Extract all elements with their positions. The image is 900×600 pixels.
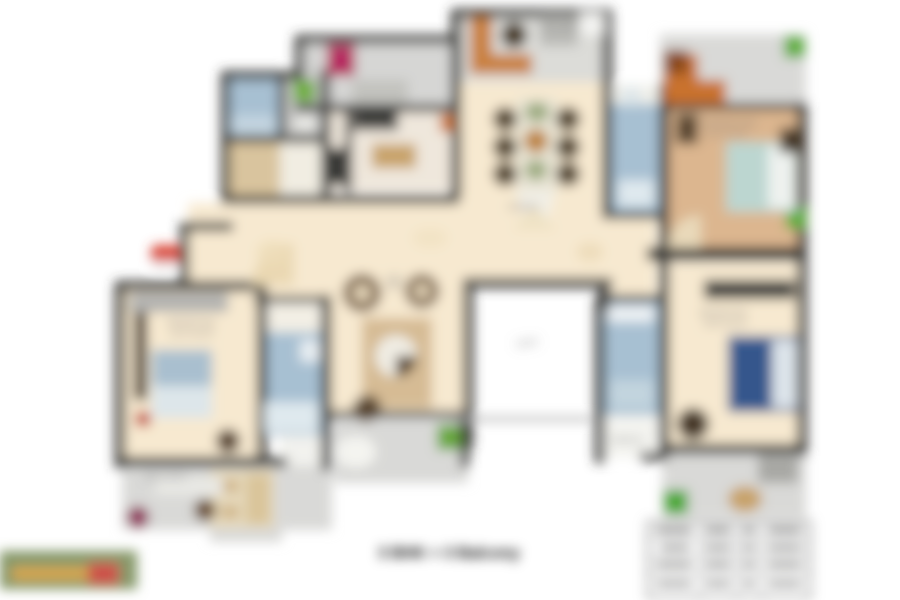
svg-text:10'6"X11'6": 10'6"X11'6" xyxy=(703,319,748,329)
svg-text:BEDROOM: BEDROOM xyxy=(168,318,215,328)
svg-text:BEDROOM: BEDROOM xyxy=(700,308,747,318)
svg-text:DRESS: DRESS xyxy=(612,435,643,445)
svg-text:11'6"X13'0": 11'6"X13'0" xyxy=(704,129,749,139)
svg-text:M.BEDROOM: M.BEDROOM xyxy=(700,118,757,128)
svg-text:LIFT: LIFT xyxy=(516,338,539,350)
svg-text:KITCHEN: KITCHEN xyxy=(540,22,580,32)
svg-text:3 BHK + 3 Balcony: 3 BHK + 3 Balcony xyxy=(378,545,520,562)
svg-text:DINING: DINING xyxy=(508,202,540,212)
svg-text:11'0"X12'6": 11'0"X12'6" xyxy=(170,329,215,339)
svg-text:BALCONY: BALCONY xyxy=(145,472,188,482)
